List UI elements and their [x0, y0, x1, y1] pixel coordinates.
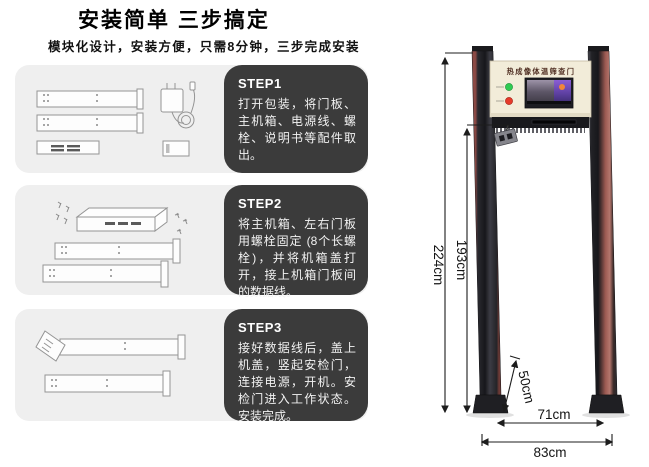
folded-chassis-icon	[36, 331, 65, 361]
dim-tick	[510, 356, 520, 359]
power-adapter-icon	[161, 82, 195, 128]
step3-text-panel: STEP3 接好数据线后，盖上机盖，竖起安检门，连接电源，开机。安检门进入工作状…	[224, 309, 368, 421]
outer-height-label: 224cm	[431, 245, 446, 286]
device-title: 热成像体温筛查门	[507, 67, 576, 76]
page-title: 安装简单 三步搞定	[78, 4, 270, 34]
step3-label: STEP3	[238, 320, 356, 335]
thermal-screen-icon	[525, 78, 573, 108]
step1-text-panel: STEP1 打开包装，将门板、主机箱、电源线、螺栓、说明书等配件取出。	[224, 65, 368, 173]
led-label-mark	[496, 100, 504, 101]
step2-card: STEP2 将主机箱、左右门板用螺栓固定 (8个长螺栓)，并将机箱盖打开，接上机…	[15, 185, 368, 295]
step1-card: STEP1 打开包装，将门板、主机箱、电源线、螺栓、说明书等配件取出。	[15, 65, 368, 173]
door-panel-icon	[60, 335, 185, 359]
step1-illustration-door-panels-and-accessories	[15, 65, 239, 173]
door-panel-icon	[37, 89, 143, 109]
outer-width-label: 83cm	[533, 445, 566, 460]
door-header-panel: 热成像体温筛查门	[490, 61, 591, 117]
door-panel-icon	[45, 371, 170, 396]
step3-illustration-assembled-door	[15, 309, 239, 421]
speaker-slot	[532, 120, 576, 124]
step3-text: 接好数据线后，盖上机盖，竖起安检门，连接电源，开机。安检门进入工作状态。安装完成…	[238, 340, 356, 425]
camera-height-label: 50cm	[515, 369, 537, 405]
door-panel-icon	[55, 239, 180, 263]
step3-card: STEP3 接好数据线后，盖上机盖，竖起安检门，连接电源，开机。安检门进入工作状…	[15, 309, 368, 421]
main-chassis-icon	[77, 208, 167, 231]
base-bar-icon	[37, 141, 99, 154]
step1-label: STEP1	[238, 76, 356, 91]
step2-text-panel: STEP2 将主机箱、左右门板用螺栓固定 (8个长螺栓)，并将机箱盖打开，接上机…	[224, 185, 368, 295]
green-led-icon	[505, 83, 512, 90]
page-subtitle: 模块化设计，安装方便，只需8分钟，三步完成安装	[48, 36, 360, 55]
led-label-mark	[496, 86, 504, 87]
step1-text: 打开包装，将门板、主机箱、电源线、螺栓、说明书等配件取出。	[238, 96, 356, 164]
security-door-dimension-diagram: 热成像体温筛查门	[420, 25, 649, 467]
manual-book-icon	[163, 141, 189, 156]
door-panel-icon	[37, 113, 143, 133]
step2-illustration-chassis-bolted-to-panels	[15, 185, 239, 295]
step2-label: STEP2	[238, 196, 356, 211]
right-door-post	[588, 46, 624, 413]
dim-line-camera-height	[504, 361, 516, 411]
red-led-icon	[505, 97, 512, 104]
door-panel-icon	[43, 261, 168, 287]
step2-text: 将主机箱、左右门板用螺栓固定 (8个长螺栓)，并将机箱盖打开，接上机箱门板间的数…	[238, 216, 356, 301]
install-infographic: 安装简单 三步搞定 模块化设计，安装方便，只需8分钟，三步完成安装	[0, 0, 649, 467]
inner-width-label: 71cm	[537, 407, 570, 422]
inner-height-label: 193cm	[454, 240, 469, 281]
